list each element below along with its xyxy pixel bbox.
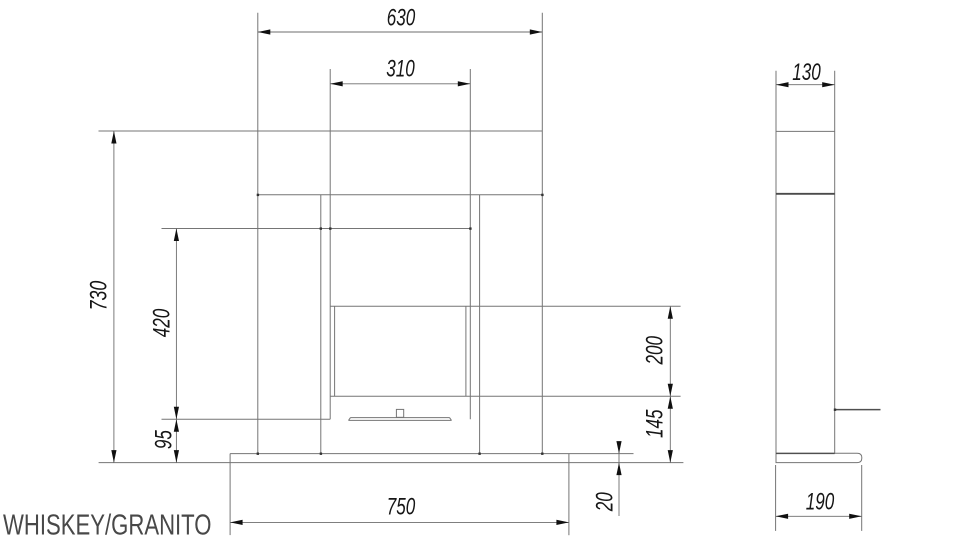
svg-text:20: 20: [591, 492, 618, 512]
svg-text:145: 145: [642, 409, 669, 438]
svg-text:420: 420: [148, 308, 175, 337]
svg-text:630: 630: [387, 4, 416, 31]
svg-text:310: 310: [386, 55, 415, 82]
svg-text:730: 730: [86, 280, 113, 310]
svg-text:750: 750: [387, 494, 416, 521]
svg-text:200: 200: [642, 336, 669, 366]
svg-text:190: 190: [806, 489, 835, 516]
svg-text:130: 130: [792, 59, 821, 86]
svg-text:95: 95: [150, 430, 177, 449]
svg-text:WHISKEY/GRANITO: WHISKEY/GRANITO: [3, 510, 212, 542]
